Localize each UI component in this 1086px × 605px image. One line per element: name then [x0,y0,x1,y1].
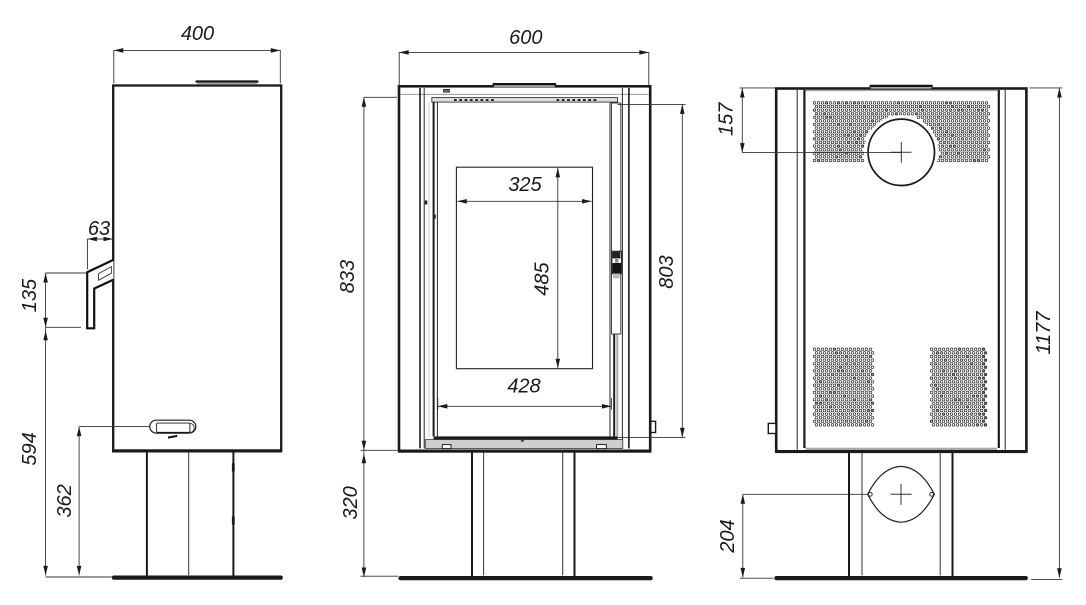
svg-text:833: 833 [337,260,359,293]
svg-text:1177: 1177 [1033,311,1055,355]
svg-text:63: 63 [88,218,110,240]
svg-text:325: 325 [508,174,542,196]
svg-text:600: 600 [509,27,542,49]
svg-text:320: 320 [340,486,362,519]
svg-text:594: 594 [19,432,41,465]
svg-text:803: 803 [656,255,678,288]
svg-text:428: 428 [507,375,540,397]
svg-text:362: 362 [54,484,76,517]
svg-text:485: 485 [532,261,554,295]
svg-text:135: 135 [19,278,41,312]
svg-text:157: 157 [715,102,737,136]
svg-text:400: 400 [181,23,214,45]
svg-text:204: 204 [717,519,739,553]
